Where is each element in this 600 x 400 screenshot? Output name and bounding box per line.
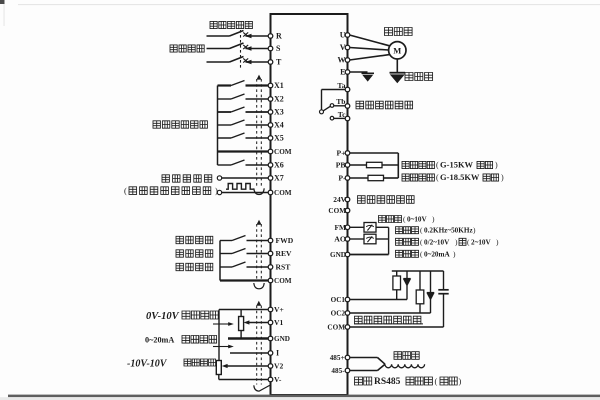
svg-text:G-18.5KW: G-18.5KW: [440, 172, 480, 182]
svg-text:X3: X3: [274, 108, 284, 117]
svg-text:W: W: [338, 56, 346, 65]
svg-text:(: (: [436, 161, 439, 170]
svg-text:): ): [495, 161, 498, 170]
svg-text:OC1: OC1: [331, 296, 346, 304]
svg-text:COM: COM: [328, 207, 346, 215]
svg-text:OC2: OC2: [331, 310, 346, 318]
svg-text:T: T: [276, 58, 282, 67]
svg-text:COM: COM: [274, 189, 292, 197]
svg-text:X1: X1: [274, 81, 284, 90]
svg-text:P-: P-: [338, 174, 346, 183]
svg-text:X4: X4: [274, 121, 284, 130]
svg-text:FM: FM: [335, 223, 347, 232]
svg-text:RST: RST: [276, 263, 291, 272]
svg-text:-10V-10V: -10V-10V: [127, 358, 168, 369]
svg-text:(: (: [435, 376, 438, 386]
svg-text:0~20mA: 0~20mA: [424, 250, 451, 258]
svg-text:U: U: [340, 31, 346, 40]
svg-text:0~10V: 0~10V: [407, 216, 428, 224]
svg-text:485+: 485+: [330, 354, 345, 362]
svg-text:0~20mA: 0~20mA: [145, 335, 174, 344]
svg-text:0V-10V: 0V-10V: [146, 311, 180, 322]
svg-text:(: (: [124, 186, 127, 196]
svg-text:RS485: RS485: [374, 377, 401, 387]
svg-text:V-: V-: [274, 375, 282, 384]
svg-text:COM: COM: [274, 148, 292, 156]
svg-text:FWD: FWD: [276, 236, 294, 245]
svg-text:S: S: [276, 44, 281, 53]
svg-text:I: I: [276, 349, 279, 358]
svg-text:GND: GND: [274, 335, 290, 343]
svg-text:E: E: [340, 68, 345, 77]
svg-text:Ta: Ta: [337, 81, 345, 90]
svg-text:(: (: [436, 173, 439, 182]
svg-text:0/2~10V: 0/2~10V: [424, 238, 450, 246]
svg-text:R: R: [276, 32, 282, 41]
svg-text:REV: REV: [276, 249, 293, 258]
svg-text:): ): [459, 376, 462, 386]
svg-text:X5: X5: [274, 134, 284, 143]
svg-text:V2: V2: [274, 362, 283, 371]
svg-text:G-15KW: G-15KW: [440, 160, 474, 170]
svg-text:2~10V: 2~10V: [471, 238, 492, 246]
svg-text:COM: COM: [274, 277, 292, 285]
svg-text:V1: V1: [274, 318, 283, 327]
svg-text:GND: GND: [330, 251, 346, 259]
svg-text:): ): [215, 186, 218, 196]
svg-text:X6: X6: [274, 161, 284, 170]
svg-text:Tb: Tb: [336, 97, 345, 106]
svg-text:PB: PB: [336, 161, 346, 170]
svg-text:X2: X2: [274, 95, 284, 104]
svg-text:V+: V+: [274, 305, 284, 314]
svg-text:485-: 485-: [331, 367, 345, 375]
svg-text:Tc: Tc: [338, 110, 346, 119]
svg-text:X7: X7: [274, 174, 284, 183]
svg-text:): ): [501, 173, 504, 182]
svg-text:0.2KHz~50KHz: 0.2KHz~50KHz: [424, 227, 473, 235]
svg-text:AO: AO: [334, 235, 346, 244]
svg-text:V: V: [340, 43, 346, 52]
svg-text:P+: P+: [337, 149, 346, 158]
svg-text:24V: 24V: [333, 195, 346, 204]
svg-text:COM: COM: [327, 324, 345, 332]
svg-text:M: M: [393, 46, 401, 56]
